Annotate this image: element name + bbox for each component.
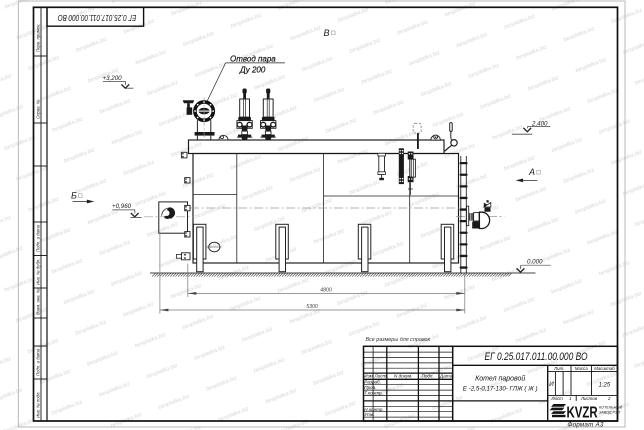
svg-text:Изм.: Изм. bbox=[364, 374, 374, 379]
svg-text:1:25: 1:25 bbox=[599, 382, 611, 388]
svg-text:Н.контр.: Н.контр. bbox=[364, 407, 383, 412]
svg-text:Инв. № дубл.: Инв. № дубл. bbox=[36, 259, 41, 285]
svg-text:Масса: Масса bbox=[575, 366, 589, 371]
svg-text:Формат А3: Формат А3 bbox=[567, 421, 604, 428]
svg-text:Масштаб: Масштаб bbox=[594, 366, 615, 371]
svg-text:Отвод пара: Отвод пара bbox=[230, 55, 276, 64]
svg-text:Инв. № подл.: Инв. № подл. bbox=[36, 391, 41, 418]
svg-text:+3,200: +3,200 bbox=[103, 75, 123, 82]
svg-text:Лит.: Лит. bbox=[553, 366, 564, 371]
svg-text:В: В bbox=[324, 28, 330, 38]
svg-text:Перв. примен.: Перв. примен. bbox=[36, 23, 41, 52]
svg-text:+0,960: +0,960 bbox=[112, 203, 132, 210]
svg-text:Ду 200: Ду 200 bbox=[239, 65, 266, 74]
svg-text:ЗАВОД РЭП: ЗАВОД РЭП bbox=[599, 410, 620, 414]
svg-text:И: И bbox=[549, 381, 554, 388]
svg-text:2: 2 bbox=[607, 396, 611, 401]
svg-text:КОТЕЛЬНЫЙ: КОТЕЛЬНЫЙ bbox=[599, 405, 623, 409]
svg-text:Все размеры для справок: Все размеры для справок bbox=[366, 337, 431, 343]
svg-text:Лист: Лист bbox=[551, 396, 564, 401]
svg-text:Т.контр.: Т.контр. bbox=[364, 391, 383, 396]
svg-text:ЕГ 0.25.017.011.00.000 ВО: ЕГ 0.25.017.011.00.000 ВО bbox=[485, 351, 588, 363]
svg-text:KVZR: KVZR bbox=[567, 404, 598, 421]
svg-text:Лист: Лист bbox=[374, 374, 387, 379]
svg-text:Утв.: Утв. bbox=[364, 412, 374, 417]
svg-text:Дата: Дата bbox=[439, 374, 453, 379]
svg-text:Подп. и дата: Подп. и дата bbox=[36, 348, 41, 376]
svg-text:Б: Б bbox=[71, 191, 77, 201]
svg-text:Подп.: Подп. bbox=[422, 374, 434, 379]
svg-text:Взам. инв. №: Взам. инв. № bbox=[36, 288, 41, 315]
svg-text:N докум.: N докум. bbox=[394, 374, 413, 379]
svg-text:Пров.: Пров. bbox=[364, 385, 376, 390]
svg-text:Котел паровой: Котел паровой bbox=[475, 375, 525, 383]
svg-text:5300: 5300 bbox=[306, 304, 318, 310]
svg-text:А: А bbox=[528, 167, 535, 177]
svg-text:0,000: 0,000 bbox=[527, 258, 543, 265]
svg-text:Листов: Листов bbox=[580, 396, 598, 401]
svg-text:4800: 4800 bbox=[320, 287, 332, 293]
svg-text:Разраб.: Разраб. bbox=[364, 380, 381, 385]
svg-text:ЕГ 0.25.017.011.00.000 ВО: ЕГ 0.25.017.011.00.000 ВО bbox=[58, 13, 137, 23]
svg-text:Подп. и дата: Подп. и дата bbox=[36, 224, 41, 252]
svg-text:Е -2,5-0,17-130- ГЛЖ ( Ж ): Е -2,5-0,17-130- ГЛЖ ( Ж ) bbox=[463, 386, 538, 393]
svg-text:Справ. №: Справ. № bbox=[36, 99, 41, 119]
